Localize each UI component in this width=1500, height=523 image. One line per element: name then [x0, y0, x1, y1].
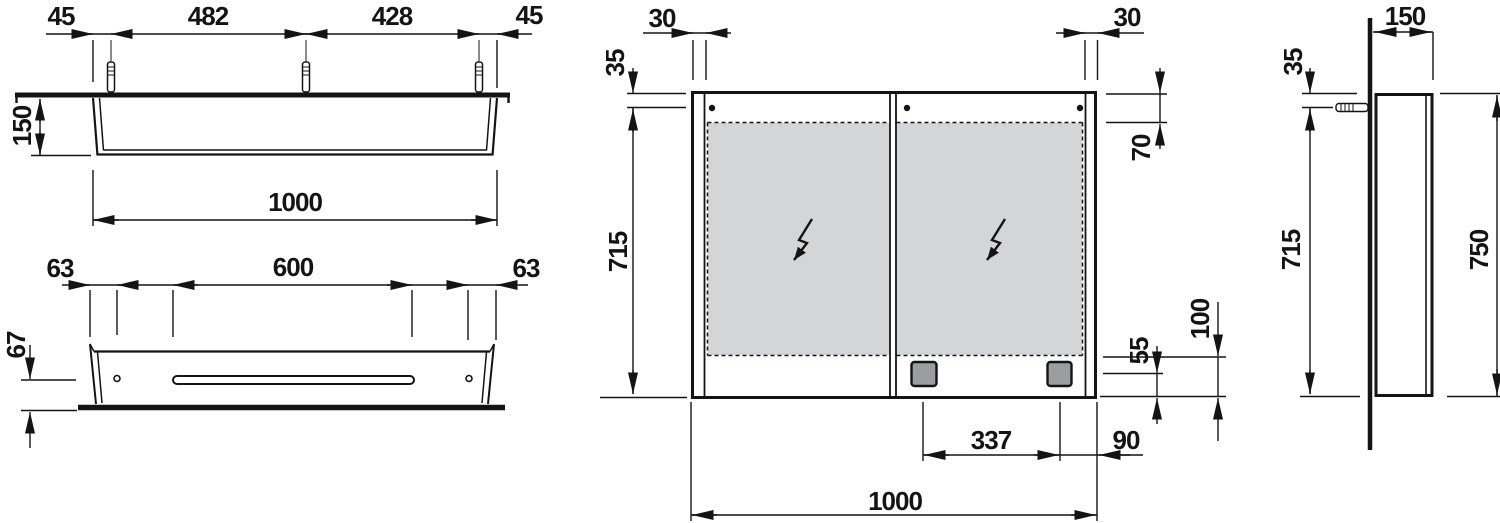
mounting-slot [173, 376, 414, 384]
bottom-view [21, 285, 528, 448]
dim-label-top-left-offset: 45 [48, 3, 75, 29]
dim-label-side-height: 750 [1466, 230, 1492, 270]
dim-label-bottom-left-hole: 63 [47, 255, 74, 281]
cabinet-body-top-view [93, 98, 497, 156]
dim-label-anchor-span-left: 482 [188, 3, 228, 29]
dim-label-front-width: 1000 [868, 488, 922, 514]
dim-label-top-right-offset: 45 [516, 2, 543, 28]
dim-label-socket-span: 337 [971, 427, 1011, 453]
dim-label-frame-left: 30 [649, 5, 676, 31]
hanger-hole [709, 105, 715, 111]
dim-label-bottom-height: 67 [3, 332, 29, 359]
dim-label-side-depth: 150 [1385, 3, 1425, 29]
wall-anchor-icon [303, 40, 310, 92]
dim-label-side-top-to-anchor: 35 [1280, 49, 1306, 76]
hanger-hole [1077, 105, 1083, 111]
dim-label-anchor-span-right: 428 [372, 3, 412, 29]
door-divider [890, 93, 896, 398]
wall-anchor-icon [1336, 104, 1368, 112]
screw-hole [466, 376, 472, 382]
dim-label-slot-length: 600 [273, 254, 313, 280]
cabinet-body-bottom-view [90, 344, 494, 404]
hanger-hole [904, 105, 910, 111]
technical-drawing-page: 45 482 428 45 150 1000 63 600 63 67 30 3… [0, 0, 1500, 523]
wall-anchor-icon [476, 40, 483, 92]
screw-hole [114, 376, 120, 382]
mirror-door-right [897, 123, 1082, 355]
wall-anchor-icon [108, 40, 115, 92]
dim-label-socket-to-bottom: 55 [1126, 338, 1152, 365]
dim-label-side-anchor-to-bottom: 715 [1278, 230, 1304, 270]
cabinet-body-side-view [1376, 95, 1432, 396]
dim-label-top-to-hanger: 35 [602, 50, 628, 77]
power-socket-icon [1048, 362, 1072, 386]
dim-label-top-to-mirror: 70 [1128, 135, 1154, 162]
dim-label-mirror-to-bottom: 100 [1187, 299, 1213, 339]
dim-label-socket-to-edge: 90 [1113, 427, 1140, 453]
dim-label-frame-right: 30 [1114, 4, 1141, 30]
dim-label-top-width: 1000 [268, 189, 322, 215]
power-socket-icon [912, 362, 937, 386]
drawing-canvas [0, 0, 1500, 523]
dim-label-top-depth: 150 [9, 106, 35, 146]
dim-label-hanger-to-bottom: 715 [605, 232, 631, 272]
dim-label-bottom-right-hole: 63 [513, 255, 540, 281]
